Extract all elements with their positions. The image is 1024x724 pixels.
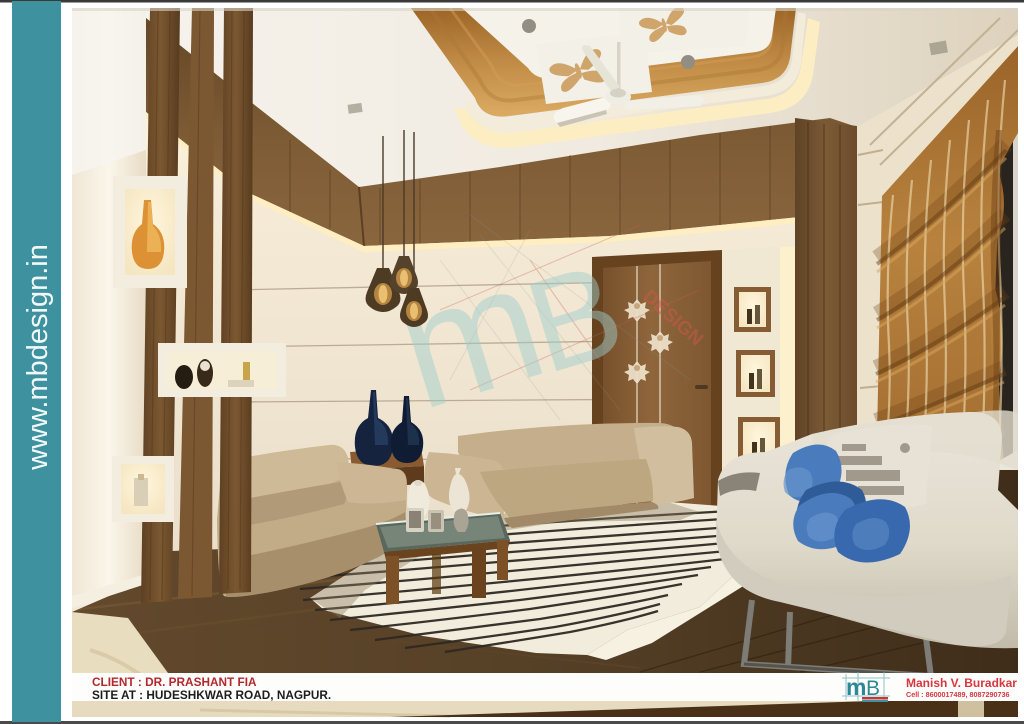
- svg-text:www.mbdesign.in: www.mbdesign.in: [22, 244, 54, 471]
- svg-text:m: m: [846, 674, 866, 700]
- svg-text:SITE AT : HUDESHKWAR ROAD, NAG: SITE AT : HUDESHKWAR ROAD, NAGPUR.: [92, 688, 331, 702]
- svg-text:CLIENT : DR. PRASHANT FIA: CLIENT : DR. PRASHANT FIA: [92, 675, 257, 689]
- svg-text:Manish V. Buradkar: Manish V. Buradkar: [906, 676, 1017, 690]
- svg-text:Cell : 8600017489, 8087290736: Cell : 8600017489, 8087290736: [906, 690, 1010, 699]
- svg-text:B: B: [866, 677, 880, 700]
